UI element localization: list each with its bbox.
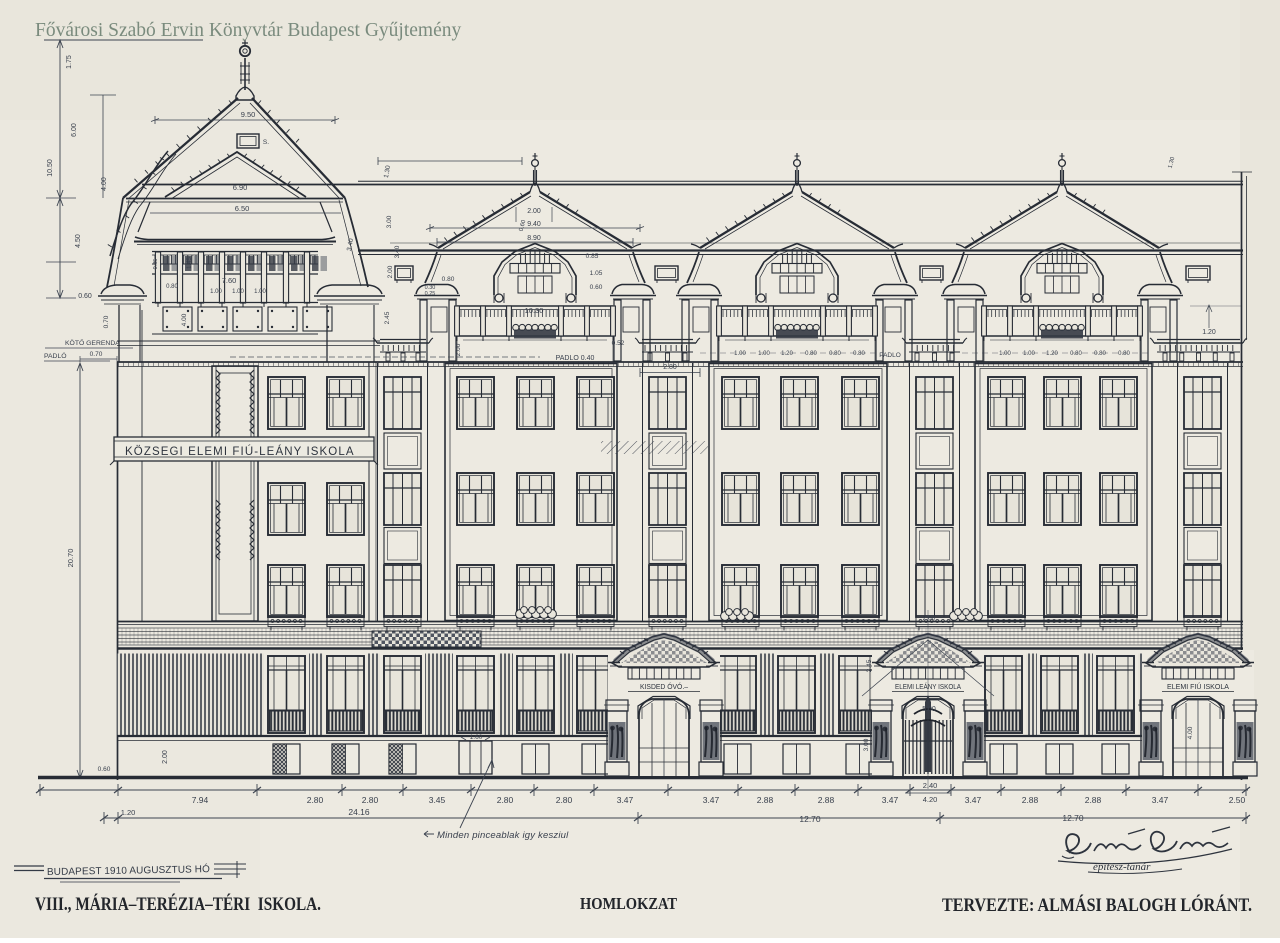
svg-text:2.50: 2.50 — [1229, 795, 1246, 805]
svg-text:0.80: 0.80 — [1070, 351, 1082, 357]
svg-text:8.90: 8.90 — [527, 235, 541, 242]
svg-text:4.00: 4.00 — [101, 177, 108, 191]
svg-text:1.00: 1.00 — [232, 289, 244, 295]
svg-text:3.47: 3.47 — [965, 795, 982, 805]
svg-text:3.00: 3.00 — [863, 738, 870, 751]
svg-text:2.88: 2.88 — [757, 795, 774, 805]
svg-text:KÖZSEGI ELEMI FIÚ-LEÁNY ISKOLA: KÖZSEGI ELEMI FIÚ-LEÁNY ISKOLA — [125, 445, 355, 458]
svg-text:2.88: 2.88 — [818, 795, 835, 805]
svg-text:1.75: 1.75 — [66, 55, 73, 69]
svg-text:9.40: 9.40 — [527, 221, 541, 228]
svg-text:1.45: 1.45 — [187, 257, 193, 269]
svg-text:0.80: 0.80 — [853, 351, 865, 357]
svg-text:0.52: 0.52 — [612, 340, 625, 347]
svg-text:ELEMI FIÚ ISKOLA: ELEMI FIÚ ISKOLA — [1167, 682, 1229, 691]
svg-text:1.20: 1.20 — [121, 808, 136, 817]
svg-text:24.16: 24.16 — [348, 807, 370, 817]
svg-text:3.40: 3.40 — [394, 245, 401, 258]
svg-text:3.47: 3.47 — [1152, 795, 1169, 805]
svg-text:0.80: 0.80 — [1094, 351, 1106, 357]
svg-text:PADLÓ: PADLÓ — [44, 351, 67, 360]
svg-text:0.60: 0.60 — [78, 293, 92, 300]
svg-text:2.00: 2.00 — [162, 750, 169, 764]
svg-text:Minden pinceablak igy kesziul: Minden pinceablak igy kesziul — [437, 830, 569, 841]
svg-text:5.00: 5.00 — [922, 706, 936, 713]
svg-text:2.40: 2.40 — [923, 781, 938, 790]
svg-text:7.60: 7.60 — [222, 276, 237, 285]
svg-text:2.80: 2.80 — [556, 795, 573, 805]
svg-text:0.80: 0.80 — [1118, 351, 1130, 357]
svg-text:Fővárosi Szabó Ervin Könyvtár: Fővárosi Szabó Ervin Könyvtár Budapest G… — [35, 20, 461, 41]
svg-text:3.47: 3.47 — [703, 795, 720, 805]
svg-text:3.00: 3.00 — [386, 215, 393, 228]
svg-text:2.88: 2.88 — [1022, 795, 1039, 805]
svg-text:1.00: 1.00 — [254, 289, 266, 295]
svg-text:2.80: 2.80 — [663, 364, 677, 371]
svg-text:0.70: 0.70 — [103, 315, 110, 328]
svg-text:2.80: 2.80 — [307, 795, 324, 805]
svg-text:KÖTŐ GERENDA: KÖTŐ GERENDA — [65, 338, 120, 347]
svg-text:0.85: 0.85 — [586, 253, 599, 260]
svg-text:7.94: 7.94 — [192, 795, 209, 805]
svg-text:2.00: 2.00 — [923, 615, 936, 622]
svg-text:1.20: 1.20 — [1202, 329, 1216, 336]
svg-text:2.00: 2.00 — [455, 343, 462, 356]
svg-text:10.50: 10.50 — [47, 159, 54, 177]
svg-text:VIII., MÁRIA–TERÉZIA–TÉRI ISK: VIII., MÁRIA–TERÉZIA–TÉRI ISKOLA. — [35, 893, 321, 915]
svg-text:6.90: 6.90 — [233, 183, 248, 192]
svg-text:12.70: 12.70 — [1062, 813, 1084, 823]
svg-text:2.88: 2.88 — [1085, 795, 1102, 805]
svg-text:0.60: 0.60 — [590, 284, 603, 291]
svg-text:10.30: 10.30 — [525, 306, 544, 315]
svg-text:1.00: 1.00 — [210, 289, 222, 295]
svg-text:6.00: 6.00 — [71, 123, 78, 137]
svg-text:9.50: 9.50 — [241, 110, 256, 119]
svg-text:1.00: 1.00 — [999, 351, 1011, 357]
svg-text:építész-tanár: építész-tanár — [1093, 861, 1151, 873]
svg-text:0.80: 0.80 — [829, 351, 841, 357]
svg-text:0.80: 0.80 — [166, 284, 178, 290]
svg-text:4.50: 4.50 — [75, 234, 82, 248]
svg-text:HOMLOKZAT: HOMLOKZAT — [580, 894, 677, 913]
svg-text:2.00: 2.00 — [387, 265, 394, 278]
svg-text:3.47: 3.47 — [882, 795, 899, 805]
svg-text:0.70: 0.70 — [90, 351, 103, 358]
svg-text:20.70: 20.70 — [66, 549, 75, 568]
svg-text:2.80: 2.80 — [497, 795, 514, 805]
svg-text:12.70: 12.70 — [799, 814, 821, 824]
svg-text:2.00: 2.00 — [527, 208, 541, 215]
svg-text:4.00: 4.00 — [1187, 726, 1194, 739]
svg-text:1.60: 1.60 — [470, 734, 483, 741]
svg-text:0.80: 0.80 — [805, 351, 817, 357]
svg-text:2.80: 2.80 — [362, 795, 379, 805]
svg-text:KISDED ÓVÓ.–: KISDED ÓVÓ.– — [640, 682, 688, 691]
svg-text:2.45: 2.45 — [384, 311, 391, 324]
svg-text:0.80: 0.80 — [442, 276, 455, 283]
svg-text:PADLO: PADLO — [879, 352, 901, 359]
svg-text:4.00: 4.00 — [181, 313, 188, 326]
svg-text:TERVEZTE: ALMÁSI BALOGH LÓRÁNT: TERVEZTE: ALMÁSI BALOGH LÓRÁNT. — [942, 894, 1252, 916]
svg-text:1.00: 1.00 — [1023, 351, 1035, 357]
svg-text:4.20: 4.20 — [923, 795, 938, 804]
svg-text:1.20: 1.20 — [1046, 351, 1058, 357]
svg-text:0.25: 0.25 — [425, 291, 436, 297]
svg-text:PADLO 0.40: PADLO 0.40 — [556, 355, 595, 362]
svg-text:3.47: 3.47 — [617, 795, 634, 805]
svg-text:0.35: 0.35 — [153, 259, 159, 270]
svg-text:1.20: 1.20 — [781, 351, 793, 357]
svg-text:0.60: 0.60 — [98, 766, 111, 773]
svg-text:3.45: 3.45 — [429, 795, 446, 805]
svg-text:1.00: 1.00 — [758, 351, 770, 357]
svg-text:6.50: 6.50 — [235, 204, 250, 213]
svg-text:S.: S. — [263, 139, 269, 146]
svg-text:1.05: 1.05 — [590, 270, 603, 277]
svg-text:1.00: 1.00 — [734, 351, 746, 357]
svg-text:2.45: 2.45 — [866, 659, 873, 672]
